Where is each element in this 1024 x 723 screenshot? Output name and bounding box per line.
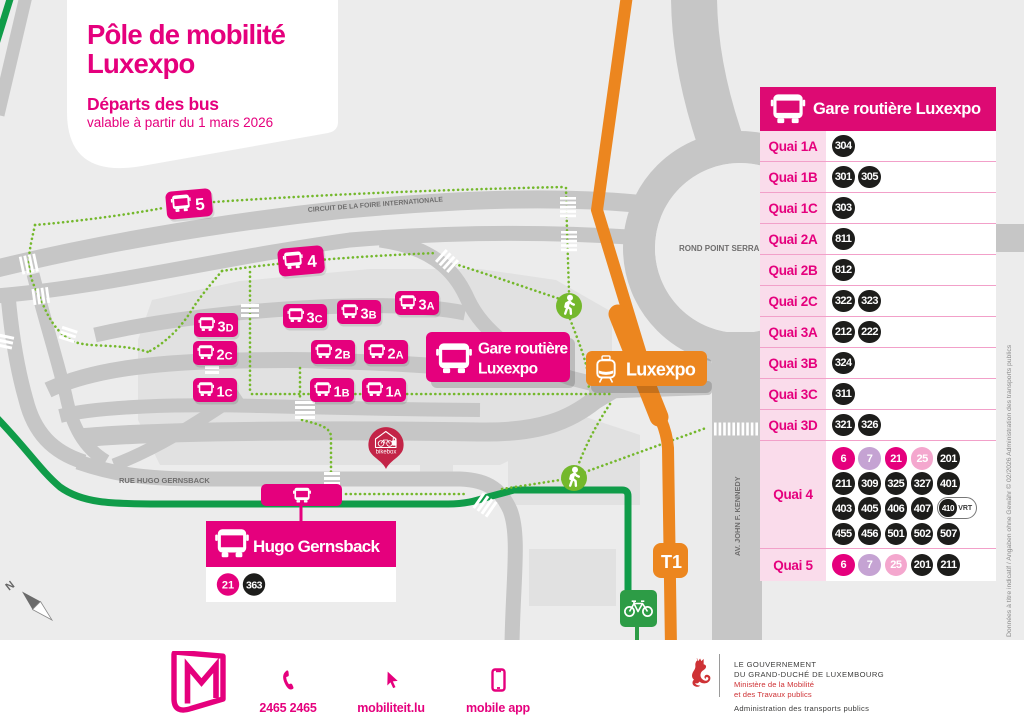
svg-text:Départs des bus: Départs des bus — [87, 94, 219, 114]
svg-text:5: 5 — [194, 195, 205, 215]
svg-text:valable à partir du 1 mars 202: valable à partir du 1 mars 2026 — [87, 115, 273, 130]
svg-text:3D: 3D — [218, 320, 234, 336]
svg-text:AV. JOHN F. KENNEDY: AV. JOHN F. KENNEDY — [733, 476, 742, 556]
svg-text:Hugo Gernsback: Hugo Gernsback — [253, 537, 380, 556]
svg-text:3C: 3C — [307, 311, 323, 327]
svg-text:bikebox: bikebox — [376, 450, 397, 456]
svg-text:Gare routière: Gare routière — [478, 341, 569, 358]
svg-text:Luxexpo: Luxexpo — [626, 360, 696, 380]
svg-text:RUE HUGO GERNSBACK: RUE HUGO GERNSBACK — [119, 476, 210, 485]
svg-text:T1: T1 — [661, 552, 682, 572]
svg-text:3A: 3A — [419, 298, 435, 314]
svg-text:ROND POINT SERRA: ROND POINT SERRA — [679, 244, 760, 253]
svg-text:1C: 1C — [217, 385, 233, 401]
svg-text:Pôle de mobilité: Pôle de mobilité — [87, 19, 286, 50]
svg-text:21: 21 — [222, 580, 234, 592]
svg-text:Luxexpo: Luxexpo — [87, 48, 194, 79]
svg-text:2B: 2B — [335, 347, 351, 363]
svg-text:1B: 1B — [334, 385, 350, 401]
svg-text:3B: 3B — [361, 307, 377, 323]
svg-text:2C: 2C — [217, 348, 233, 364]
svg-text:2A: 2A — [388, 347, 404, 363]
svg-text:1A: 1A — [386, 385, 402, 401]
svg-text:Luxexpo: Luxexpo — [478, 361, 538, 378]
svg-text:363: 363 — [246, 580, 263, 592]
